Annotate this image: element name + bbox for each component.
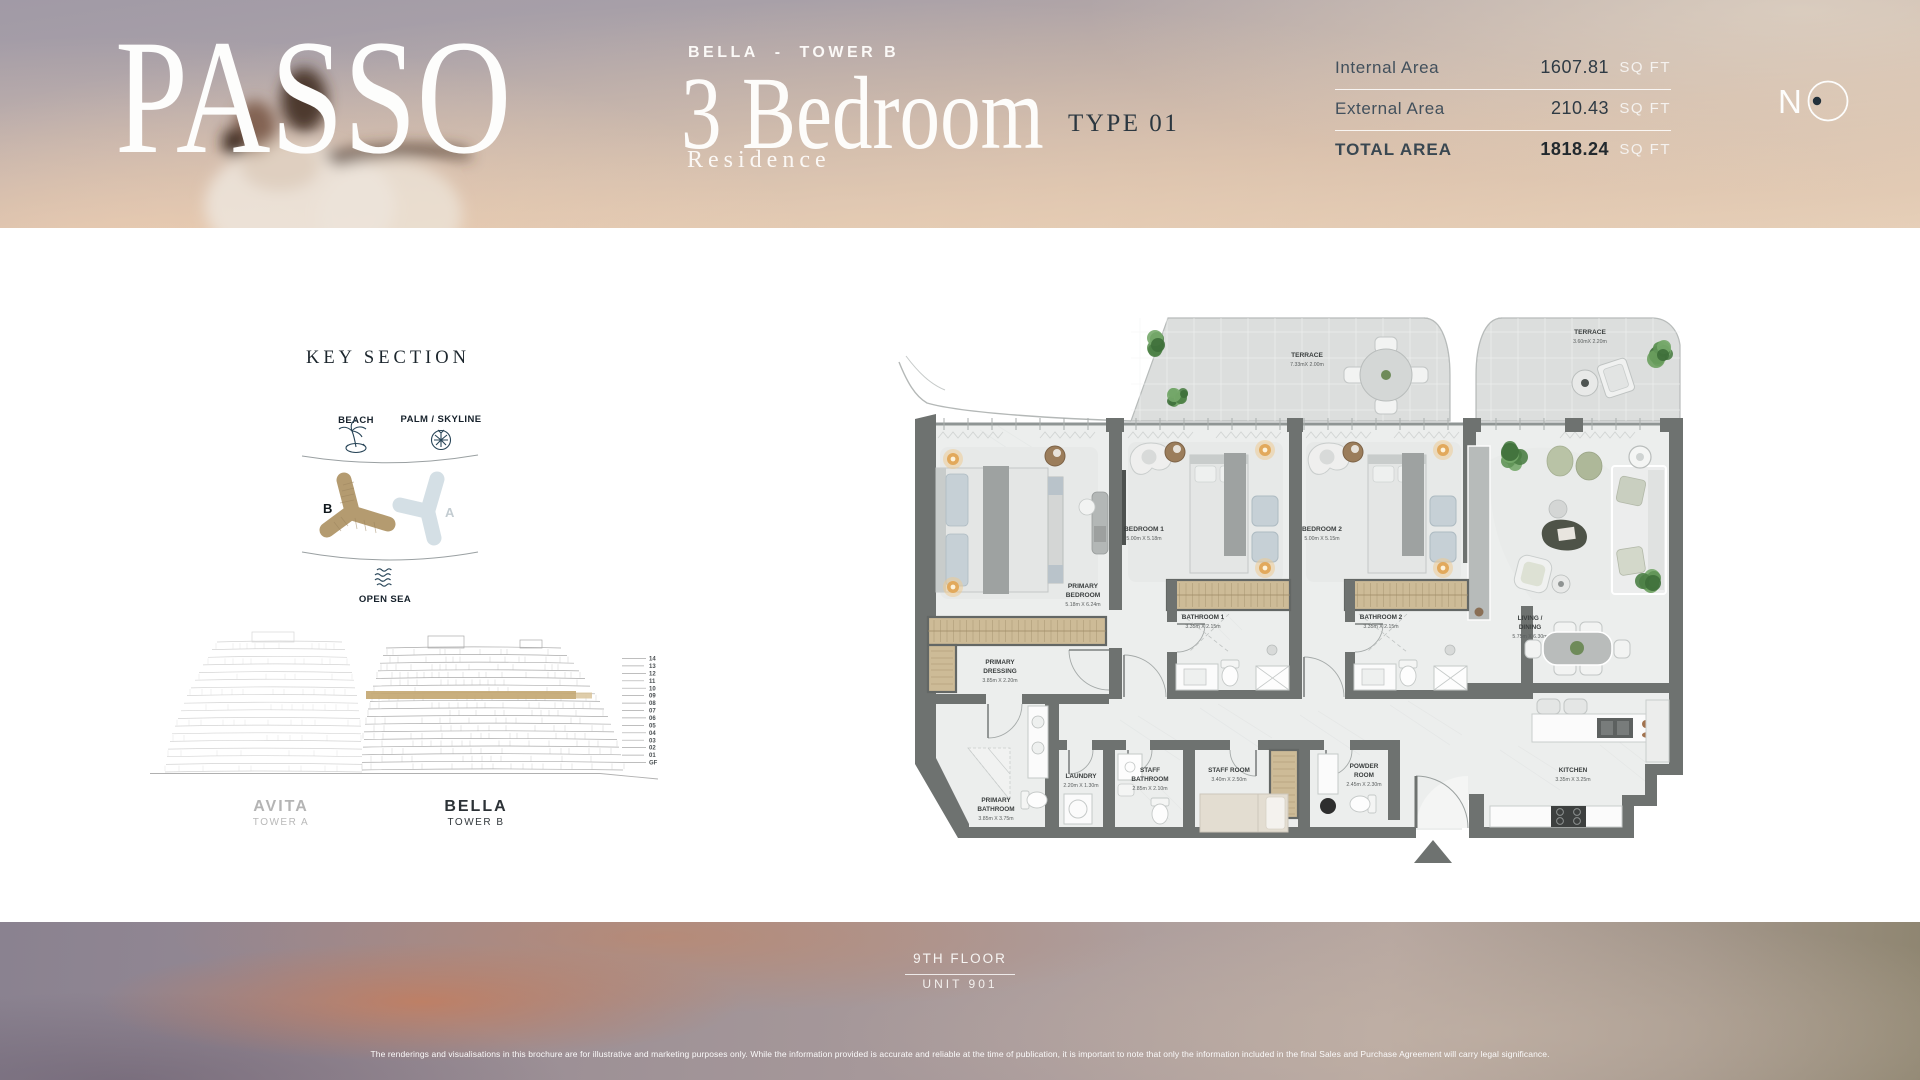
svg-text:14: 14 [649, 657, 656, 663]
svg-text:TOWER B: TOWER B [448, 817, 505, 828]
svg-text:DINING: DINING [1519, 624, 1541, 631]
svg-text:11: 11 [649, 679, 656, 685]
svg-text:08: 08 [649, 701, 656, 707]
svg-text:BEDROOM 1: BEDROOM 1 [1124, 526, 1164, 533]
svg-text:KITCHEN: KITCHEN [1559, 767, 1588, 774]
svg-text:LIVING /: LIVING / [1518, 615, 1543, 622]
svg-text:PALM / SKYLINE: PALM / SKYLINE [401, 414, 482, 425]
svg-text:B: B [323, 501, 332, 516]
svg-text:03: 03 [649, 738, 656, 744]
svg-text:TERRACE: TERRACE [1574, 329, 1606, 336]
svg-text:2.20m X 1.30m: 2.20m X 1.30m [1063, 783, 1098, 789]
svg-text:5.75m X 6.30m: 5.75m X 6.30m [1512, 634, 1547, 640]
svg-text:3.35m X 2.15m: 3.35m X 2.15m [1185, 624, 1220, 630]
svg-text:2.45m X 2.30m: 2.45m X 2.30m [1346, 782, 1381, 788]
svg-text:02: 02 [649, 746, 656, 752]
svg-text:3.85m X 3.75m: 3.85m X 3.75m [978, 816, 1013, 822]
svg-text:AVITA: AVITA [253, 798, 309, 815]
svg-text:POWDER: POWDER [1350, 763, 1379, 770]
svg-text:A: A [445, 505, 455, 520]
svg-text:STAFF: STAFF [1140, 767, 1160, 774]
svg-text:3.60mX 2.20m: 3.60mX 2.20m [1573, 339, 1607, 345]
svg-text:TERRACE: TERRACE [1291, 352, 1323, 359]
svg-text:5.18m X 6.24m: 5.18m X 6.24m [1065, 602, 1100, 608]
svg-text:07: 07 [649, 709, 656, 715]
svg-text:BATHROOM 2: BATHROOM 2 [1360, 614, 1403, 621]
svg-text:BATHROOM 1: BATHROOM 1 [1182, 614, 1225, 621]
svg-text:3.35m X 3.25m: 3.35m X 3.25m [1555, 777, 1590, 783]
svg-text:09: 09 [649, 694, 656, 700]
svg-text:BEDROOM: BEDROOM [1066, 592, 1101, 599]
svg-text:PRIMARY: PRIMARY [981, 797, 1011, 804]
svg-text:05: 05 [649, 724, 656, 730]
svg-text:STAFF ROOM: STAFF ROOM [1208, 767, 1250, 774]
svg-text:BATHROOM: BATHROOM [1131, 776, 1168, 783]
svg-text:PRIMARY: PRIMARY [1068, 583, 1099, 590]
svg-text:BELLA: BELLA [444, 798, 507, 815]
svg-text:PRIMARY: PRIMARY [985, 659, 1015, 666]
svg-text:BATHROOM: BATHROOM [977, 806, 1014, 813]
svg-text:12: 12 [649, 672, 656, 678]
svg-text:10: 10 [649, 686, 656, 692]
svg-text:TOWER A: TOWER A [253, 817, 309, 828]
svg-text:04: 04 [649, 731, 656, 737]
svg-text:N: N [1778, 83, 1802, 120]
svg-text:13: 13 [649, 664, 656, 670]
svg-text:2.85m X 2.10m: 2.85m X 2.10m [1132, 786, 1167, 792]
svg-text:5.00m X 5.15m: 5.00m X 5.15m [1304, 536, 1339, 542]
svg-text:5.00m X 5.18m: 5.00m X 5.18m [1126, 536, 1161, 542]
svg-text:06: 06 [649, 716, 656, 722]
svg-text:01: 01 [649, 753, 656, 759]
svg-text:3.35m X 2.15m: 3.35m X 2.15m [1363, 624, 1398, 630]
svg-text:LAUNDRY: LAUNDRY [1065, 773, 1097, 780]
svg-text:3.40m X 2.50m: 3.40m X 2.50m [1211, 777, 1246, 783]
svg-text:KEY SECTION: KEY SECTION [306, 348, 470, 368]
svg-text:BEDROOM 2: BEDROOM 2 [1302, 526, 1342, 533]
svg-text:OPEN SEA: OPEN SEA [359, 594, 411, 605]
svg-text:DRESSING: DRESSING [983, 668, 1016, 675]
svg-text:ROOM: ROOM [1354, 772, 1374, 779]
svg-text:GF: GF [649, 761, 658, 767]
svg-text:7.33mX 2.00m: 7.33mX 2.00m [1290, 362, 1324, 368]
svg-text:3.85m X 2.20m: 3.85m X 2.20m [982, 678, 1017, 684]
